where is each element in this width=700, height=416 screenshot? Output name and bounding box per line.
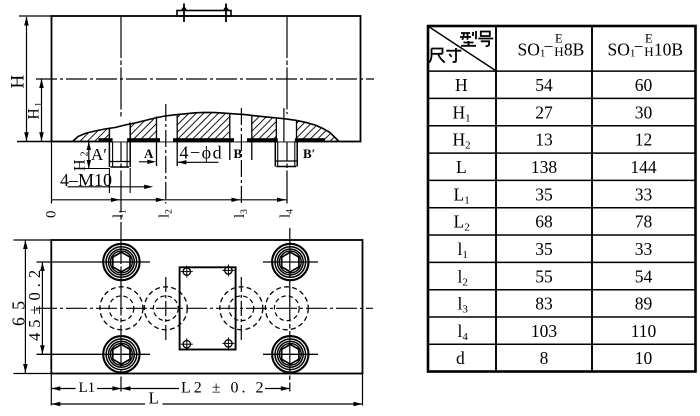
svg-text:78: 78 xyxy=(635,212,653,232)
svg-text:60: 60 xyxy=(635,75,653,95)
svg-text:4−ϕd: 4−ϕd xyxy=(180,143,224,163)
svg-text:10B: 10B xyxy=(654,40,683,60)
svg-text:0: 0 xyxy=(44,211,60,219)
svg-text:A′: A′ xyxy=(91,145,107,164)
svg-text:H2: H2 xyxy=(72,148,91,171)
svg-text:B: B xyxy=(234,146,243,161)
svg-text:SO1: SO1 xyxy=(518,40,546,60)
svg-text:35: 35 xyxy=(535,184,553,204)
svg-text:l1: l1 xyxy=(458,239,468,261)
svg-text:l2: l2 xyxy=(156,209,174,218)
svg-text:H2: H2 xyxy=(453,130,471,152)
svg-text:H: H xyxy=(554,44,563,59)
svg-text:l2: l2 xyxy=(458,266,468,288)
svg-text:l3: l3 xyxy=(458,294,469,316)
svg-text:83: 83 xyxy=(535,294,553,314)
svg-text:H: H xyxy=(8,75,29,89)
svg-text:33: 33 xyxy=(635,184,653,204)
svg-text:L2: L2 xyxy=(454,212,470,234)
svg-text:13: 13 xyxy=(535,130,553,150)
svg-text:A: A xyxy=(144,146,154,161)
svg-text:−: − xyxy=(634,37,644,57)
svg-text:55: 55 xyxy=(535,266,553,286)
svg-text:−: − xyxy=(544,37,554,57)
svg-text:l4: l4 xyxy=(458,321,469,343)
svg-text:SO1: SO1 xyxy=(608,40,636,60)
svg-text:L: L xyxy=(456,157,467,177)
svg-text:138: 138 xyxy=(531,157,558,177)
svg-text:27: 27 xyxy=(535,102,553,122)
svg-text:144: 144 xyxy=(630,157,657,177)
svg-text:103: 103 xyxy=(531,321,558,341)
svg-text:d: d xyxy=(456,348,465,368)
svg-text:l3: l3 xyxy=(232,209,250,218)
svg-text:68: 68 xyxy=(535,212,553,232)
svg-text:H1: H1 xyxy=(453,102,471,124)
svg-text:8B: 8B xyxy=(564,40,584,60)
svg-text:54: 54 xyxy=(635,266,653,286)
svg-text:l4: l4 xyxy=(278,209,296,218)
svg-text:H: H xyxy=(644,44,653,59)
svg-text:L1: L1 xyxy=(79,380,96,396)
svg-text:54: 54 xyxy=(535,75,553,95)
svg-text:110: 110 xyxy=(631,321,657,341)
svg-text:89: 89 xyxy=(635,294,653,314)
svg-text:L1: L1 xyxy=(454,184,470,206)
svg-text:B′: B′ xyxy=(303,146,315,161)
svg-text:L2 ± 0. 2: L2 ± 0. 2 xyxy=(181,380,267,397)
svg-text:L: L xyxy=(149,389,159,408)
svg-text:H: H xyxy=(455,75,468,95)
svg-text:35: 35 xyxy=(535,239,553,259)
svg-text:12: 12 xyxy=(635,130,653,150)
svg-text:33: 33 xyxy=(635,239,653,259)
svg-text:30: 30 xyxy=(635,102,653,122)
svg-text:H1: H1 xyxy=(26,101,45,120)
svg-text:8: 8 xyxy=(540,348,549,368)
svg-text:l1: l1 xyxy=(111,209,129,218)
svg-text:10: 10 xyxy=(635,348,653,368)
svg-text:45±0.2: 45±0.2 xyxy=(25,265,44,341)
